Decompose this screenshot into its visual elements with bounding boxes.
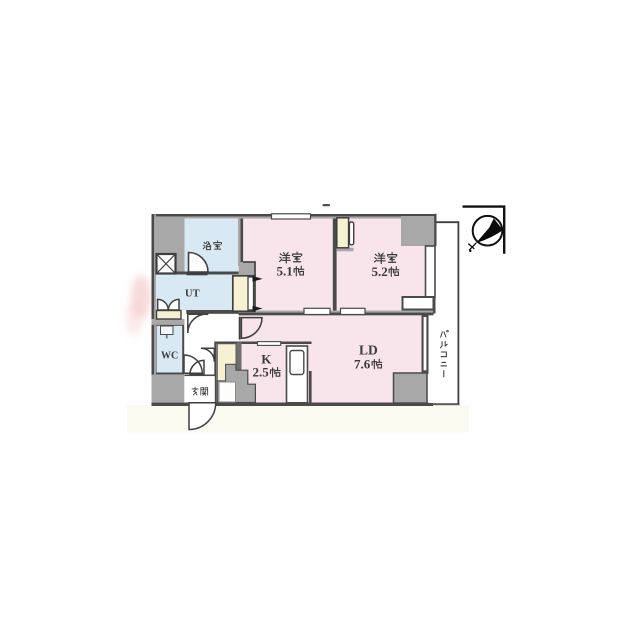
svg-text:5.1: 5.1 [277,264,293,279]
svg-text:WC: WC [161,351,178,362]
svg-text:7.6: 7.6 [354,357,371,372]
svg-text:5.2: 5.2 [372,264,388,279]
svg-text:2.5: 2.5 [253,365,270,380]
svg-text:UT: UT [185,289,200,300]
svg-text:LD: LD [359,343,378,358]
